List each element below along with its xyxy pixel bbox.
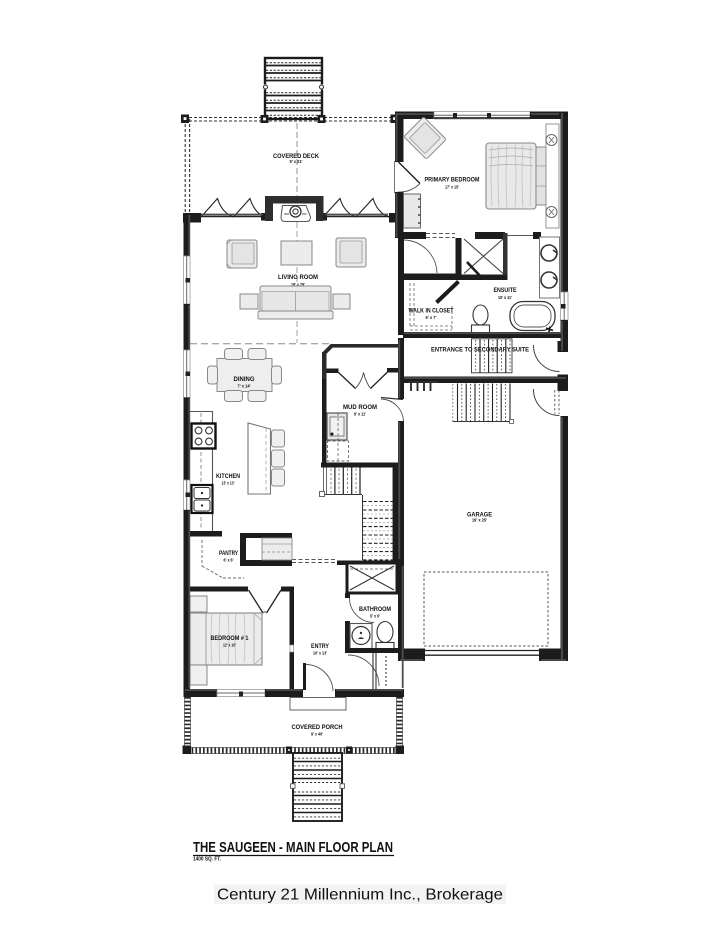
svg-text:9' x 11': 9' x 11'	[354, 412, 366, 417]
svg-text:5' x 9': 5' x 9'	[370, 614, 380, 619]
svg-text:WALK IN CLOSET: WALK IN CLOSET	[409, 309, 454, 315]
svg-text:Century 21 Millennium Inc., Br: Century 21 Millennium Inc., Brokerage	[217, 887, 503, 904]
svg-text:10' x 11': 10' x 11'	[498, 295, 512, 300]
svg-text:ENSUITE: ENSUITE	[494, 287, 517, 294]
svg-text:LIVING ROOM: LIVING ROOM	[278, 274, 318, 281]
svg-text:MUD ROOM: MUD ROOM	[343, 404, 377, 411]
svg-text:DINING: DINING	[234, 376, 255, 383]
svg-text:7' x 14': 7' x 14'	[238, 384, 251, 389]
svg-text:THE SAUGEEN - MAIN FLOOR PLAN: THE SAUGEEN - MAIN FLOOR PLAN	[193, 839, 393, 856]
svg-text:PANTRY: PANTRY	[219, 550, 239, 557]
svg-text:BEDROOM # 1: BEDROOM # 1	[211, 635, 249, 642]
svg-text:KITCHEN: KITCHEN	[216, 473, 240, 480]
svg-text:19' x 25': 19' x 25'	[472, 518, 487, 523]
svg-text:9' x 21': 9' x 21'	[290, 159, 303, 164]
svg-text:6' x 7': 6' x 7'	[426, 315, 437, 320]
svg-text:17' x 15': 17' x 15'	[445, 185, 459, 190]
svg-text:13' x 13': 13' x 13'	[222, 481, 235, 486]
svg-text:6' x 6': 6' x 6'	[224, 558, 234, 563]
svg-text:9' x 40': 9' x 40'	[311, 732, 323, 737]
svg-text:ENTRY: ENTRY	[311, 643, 330, 650]
svg-text:COVERED PORCH: COVERED PORCH	[292, 724, 343, 731]
svg-text:10' x 13': 10' x 13'	[313, 651, 327, 656]
svg-text:1400 SQ. FT.: 1400 SQ. FT.	[193, 857, 221, 863]
svg-text:BATHROOM: BATHROOM	[359, 606, 391, 613]
svg-text:PRIMARY BEDROOM: PRIMARY BEDROOM	[425, 177, 480, 184]
svg-text:12' x 10': 12' x 10'	[223, 643, 236, 648]
